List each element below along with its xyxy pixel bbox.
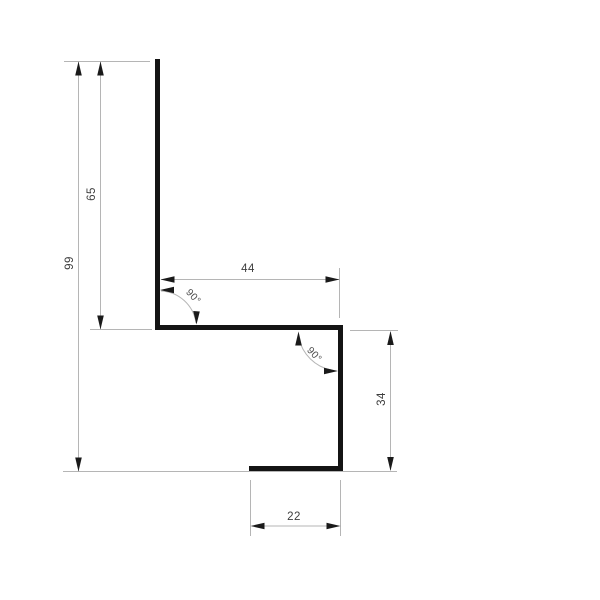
drawing-canvas: 99 65 44 34 22: [0, 0, 600, 600]
arrow-down-icon: [193, 311, 200, 325]
arrow-left-icon: [161, 276, 175, 283]
arrow-up-icon: [75, 62, 82, 76]
dimension-label-65: 65: [86, 187, 98, 201]
dimension-bottom-width: 22: [251, 511, 341, 529]
arrow-left-icon: [251, 523, 265, 530]
dimension-label-44: 44: [241, 263, 255, 275]
angle-callout-lower: 90°: [295, 332, 338, 375]
dimension-upper-height: 65: [86, 62, 104, 330]
dimension-label-22: 22: [287, 511, 301, 523]
dimension-label-34: 34: [376, 392, 388, 406]
arrow-down-icon: [387, 457, 394, 471]
arrow-right-icon: [324, 368, 338, 375]
arrow-up-icon: [387, 331, 394, 345]
arrow-up-icon: [295, 332, 302, 346]
arrow-left-icon: [160, 287, 174, 294]
extension-lines: [63, 62, 398, 537]
technical-drawing-svg: 99 65 44 34 22: [0, 0, 600, 600]
arrow-up-icon: [97, 62, 104, 76]
dimension-total-height: 99: [64, 62, 82, 472]
arrow-right-icon: [326, 276, 340, 283]
dimension-shelf-width: 44: [161, 263, 340, 283]
angle-label-upper: 90°: [183, 287, 202, 307]
dimension-label-99: 99: [64, 256, 76, 270]
arrow-down-icon: [97, 316, 104, 330]
dimension-lower-height: 34: [376, 331, 394, 471]
angle-callout-upper: 90°: [160, 287, 203, 325]
angle-label-lower: 90°: [304, 345, 323, 365]
arrow-right-icon: [327, 523, 341, 530]
arrow-down-icon: [75, 458, 82, 472]
